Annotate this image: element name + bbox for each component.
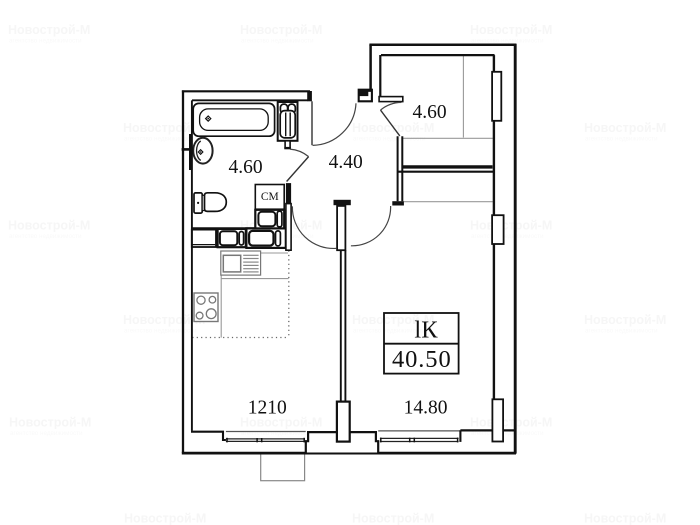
svg-text:Новострой-М: Новострой-М: [470, 219, 552, 233]
svg-text:агентство недвижимости: агентство недвижимости: [585, 328, 658, 335]
svg-text:Новострой-М: Новострой-М: [123, 313, 205, 327]
svg-text:агентство недвижимости: агентство недвижимости: [471, 38, 544, 45]
svg-text:4.60: 4.60: [228, 157, 262, 178]
svg-text:СМ: СМ: [261, 191, 279, 203]
svg-text:агентство недвижимости: агентство недвижимости: [124, 136, 197, 143]
svg-text:агентство недвижимости: агентство недвижимости: [10, 430, 83, 437]
svg-text:Новострой-М: Новострой-М: [584, 121, 666, 135]
svg-text:Новострой-М: Новострой-М: [8, 23, 90, 37]
svg-text:Новострой-М: Новострой-М: [584, 313, 666, 327]
svg-text:4.60: 4.60: [413, 102, 447, 123]
svg-text:агентство недвижимости: агентство недвижимости: [241, 38, 314, 45]
svg-text:Новострой-М: Новострой-М: [124, 512, 206, 525]
svg-text:4.40: 4.40: [329, 152, 363, 173]
svg-text:Новострой-М: Новострой-М: [470, 23, 552, 37]
svg-text:1210: 1210: [248, 398, 287, 419]
svg-text:14.80: 14.80: [404, 397, 448, 418]
svg-text:lК: lК: [414, 316, 438, 343]
svg-text:агентство недвижимости: агентство недвижимости: [353, 136, 426, 143]
svg-text:Новострой-М: Новострой-М: [470, 416, 552, 430]
svg-text:Новострой-М: Новострой-М: [8, 219, 90, 233]
svg-text:агентство недвижимости: агентство недвижимости: [9, 38, 82, 45]
svg-text:агентство недвижимости: агентство недвижимости: [124, 328, 197, 335]
svg-text:агентство недвижимости: агентство недвижимости: [9, 233, 82, 240]
svg-text:агентство недвижимости: агентство недвижимости: [585, 136, 658, 143]
svg-text:40.50: 40.50: [392, 346, 452, 373]
svg-text:Новострой-М: Новострой-М: [584, 512, 666, 525]
svg-text:Новострой-М: Новострой-М: [240, 23, 322, 37]
svg-text:Новострой-М: Новострой-М: [9, 416, 91, 430]
svg-text:Новострой-М: Новострой-М: [352, 512, 434, 525]
svg-text:агентство недвижимости: агентство недвижимости: [471, 233, 544, 240]
